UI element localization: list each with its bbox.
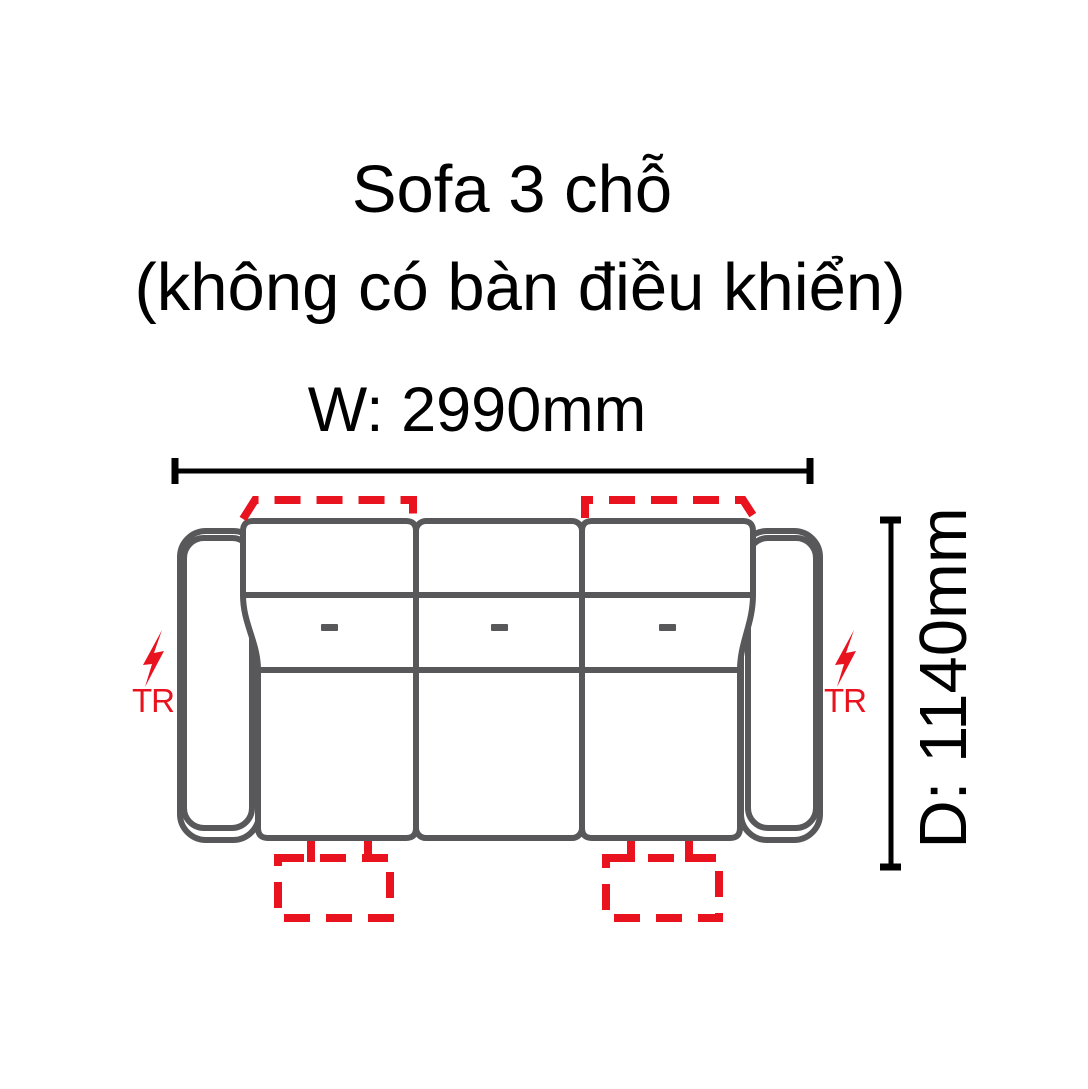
sofa-top-view-drawing: Sofa 3 chỗ (không có bàn điều khiển) W: … — [0, 0, 1088, 1089]
footrest-dashed-right — [606, 858, 719, 918]
headrest-dashed-right — [585, 500, 756, 520]
seat-left — [243, 521, 416, 838]
footrest-dashed-left — [278, 858, 390, 918]
depth-dimension-label: D: 1140mm — [906, 507, 981, 848]
width-dimension-label: W: 2990mm — [308, 375, 646, 445]
recliner-switch-label-left: TR — [132, 682, 174, 719]
seat-right — [582, 521, 753, 838]
diagram-title-line1: Sofa 3 chỗ — [352, 152, 672, 227]
stitch-mark-right — [659, 624, 676, 631]
seat-middle — [416, 521, 582, 838]
lightning-bolt-icon — [143, 630, 164, 687]
power-recliner-left: TR — [132, 630, 174, 719]
stitch-mark-middle — [491, 624, 508, 631]
headrest-recline-indicators — [243, 500, 756, 520]
footrest-extension-indicators — [278, 841, 719, 918]
power-recliner-right: TR — [824, 630, 866, 719]
headrest-dashed-left — [243, 500, 413, 519]
lightning-bolt-icon — [835, 630, 856, 687]
depth-dimension-line — [880, 520, 901, 867]
sofa-dimension-diagram: Sofa 3 chỗ (không có bàn điều khiển) W: … — [0, 0, 1088, 1089]
sofa-outline — [180, 521, 820, 840]
stitch-mark-left — [321, 624, 338, 631]
right-armrest-inner — [748, 538, 816, 828]
width-dimension-line — [175, 458, 810, 484]
diagram-title-line2: (không có bàn điều khiển) — [134, 250, 905, 325]
recliner-switch-label-right: TR — [824, 682, 866, 719]
